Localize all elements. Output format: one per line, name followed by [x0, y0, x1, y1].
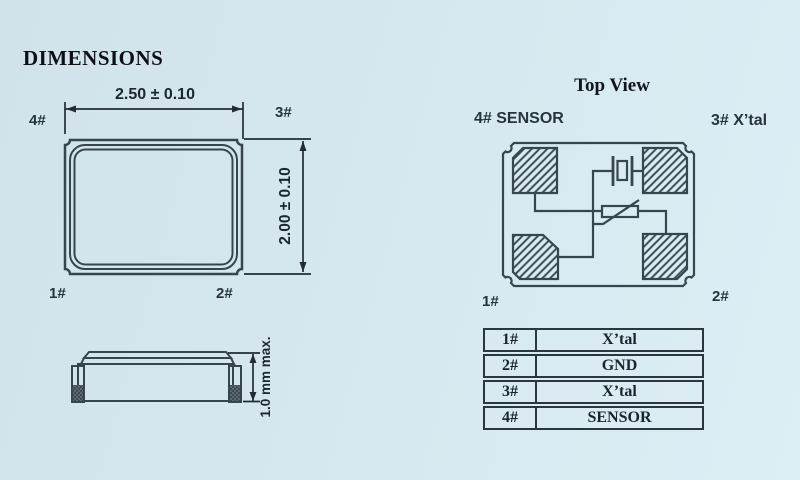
table-row: 4# SENSOR — [483, 406, 704, 430]
pad-3-xtal — [643, 148, 687, 193]
pin-number-cell: 1# — [485, 330, 537, 350]
pin-number-cell: 4# — [485, 408, 537, 428]
table-row: 1# X’tal — [483, 328, 704, 352]
body-outline — [78, 364, 233, 401]
table-row: 3# X’tal — [483, 380, 704, 404]
terminal-left-metal — [73, 385, 83, 401]
pin-function-table: 1# X’tal 2# GND 3# X’tal 4# SENSOR — [483, 328, 704, 430]
front-height-dimension: 2.00 ± 0.10 — [277, 151, 295, 261]
front-pin-3-label: 3# — [275, 104, 292, 121]
top-view-pin-4-label: 4# SENSOR — [474, 110, 564, 128]
pin-function-cell: X’tal — [537, 330, 702, 350]
table-row: 2# GND — [483, 354, 704, 378]
top-view-pin-3-label: 3# X’tal — [711, 112, 767, 130]
page-title: DIMENSIONS — [23, 46, 163, 71]
front-width-dimension: 2.50 ± 0.10 — [95, 86, 215, 104]
package-inner-ring-inner — [75, 150, 233, 265]
pin-function-cell: GND — [537, 356, 702, 376]
pin-function-cell: SENSOR — [537, 408, 702, 428]
package-inner-ring-outer — [70, 145, 237, 269]
front-pin-2-label: 2# — [216, 285, 233, 302]
side-view-drawing — [72, 352, 241, 402]
front-pin-1-label: 1# — [49, 285, 66, 302]
top-view-pin-1-label: 1# — [482, 293, 499, 310]
terminal-right-metal — [230, 385, 240, 401]
front-pin-4-label: 4# — [29, 112, 46, 129]
pad-4-sensor — [513, 148, 557, 193]
pin-function-cell: X’tal — [537, 382, 702, 402]
top-view-pin-2-label: 2# — [712, 288, 729, 305]
pin-number-cell: 2# — [485, 356, 537, 376]
front-view-drawing — [65, 140, 242, 274]
top-view-title: Top View — [552, 75, 672, 97]
datasheet-page: DIMENSIONS 2.50 ± 0.10 2.00 ± 0.10 4# 3#… — [0, 0, 800, 480]
width-dimension-lines — [65, 102, 311, 274]
top-view-drawing — [503, 143, 694, 286]
pin-number-cell: 3# — [485, 382, 537, 402]
pad-2-gnd — [643, 234, 687, 279]
side-height-dimension: 1.0 mm max. — [258, 332, 274, 422]
pad-1-xtal — [513, 235, 558, 279]
dimension-arrowheads — [66, 106, 307, 273]
package-outline — [65, 140, 242, 274]
crystal-symbol — [613, 156, 632, 186]
